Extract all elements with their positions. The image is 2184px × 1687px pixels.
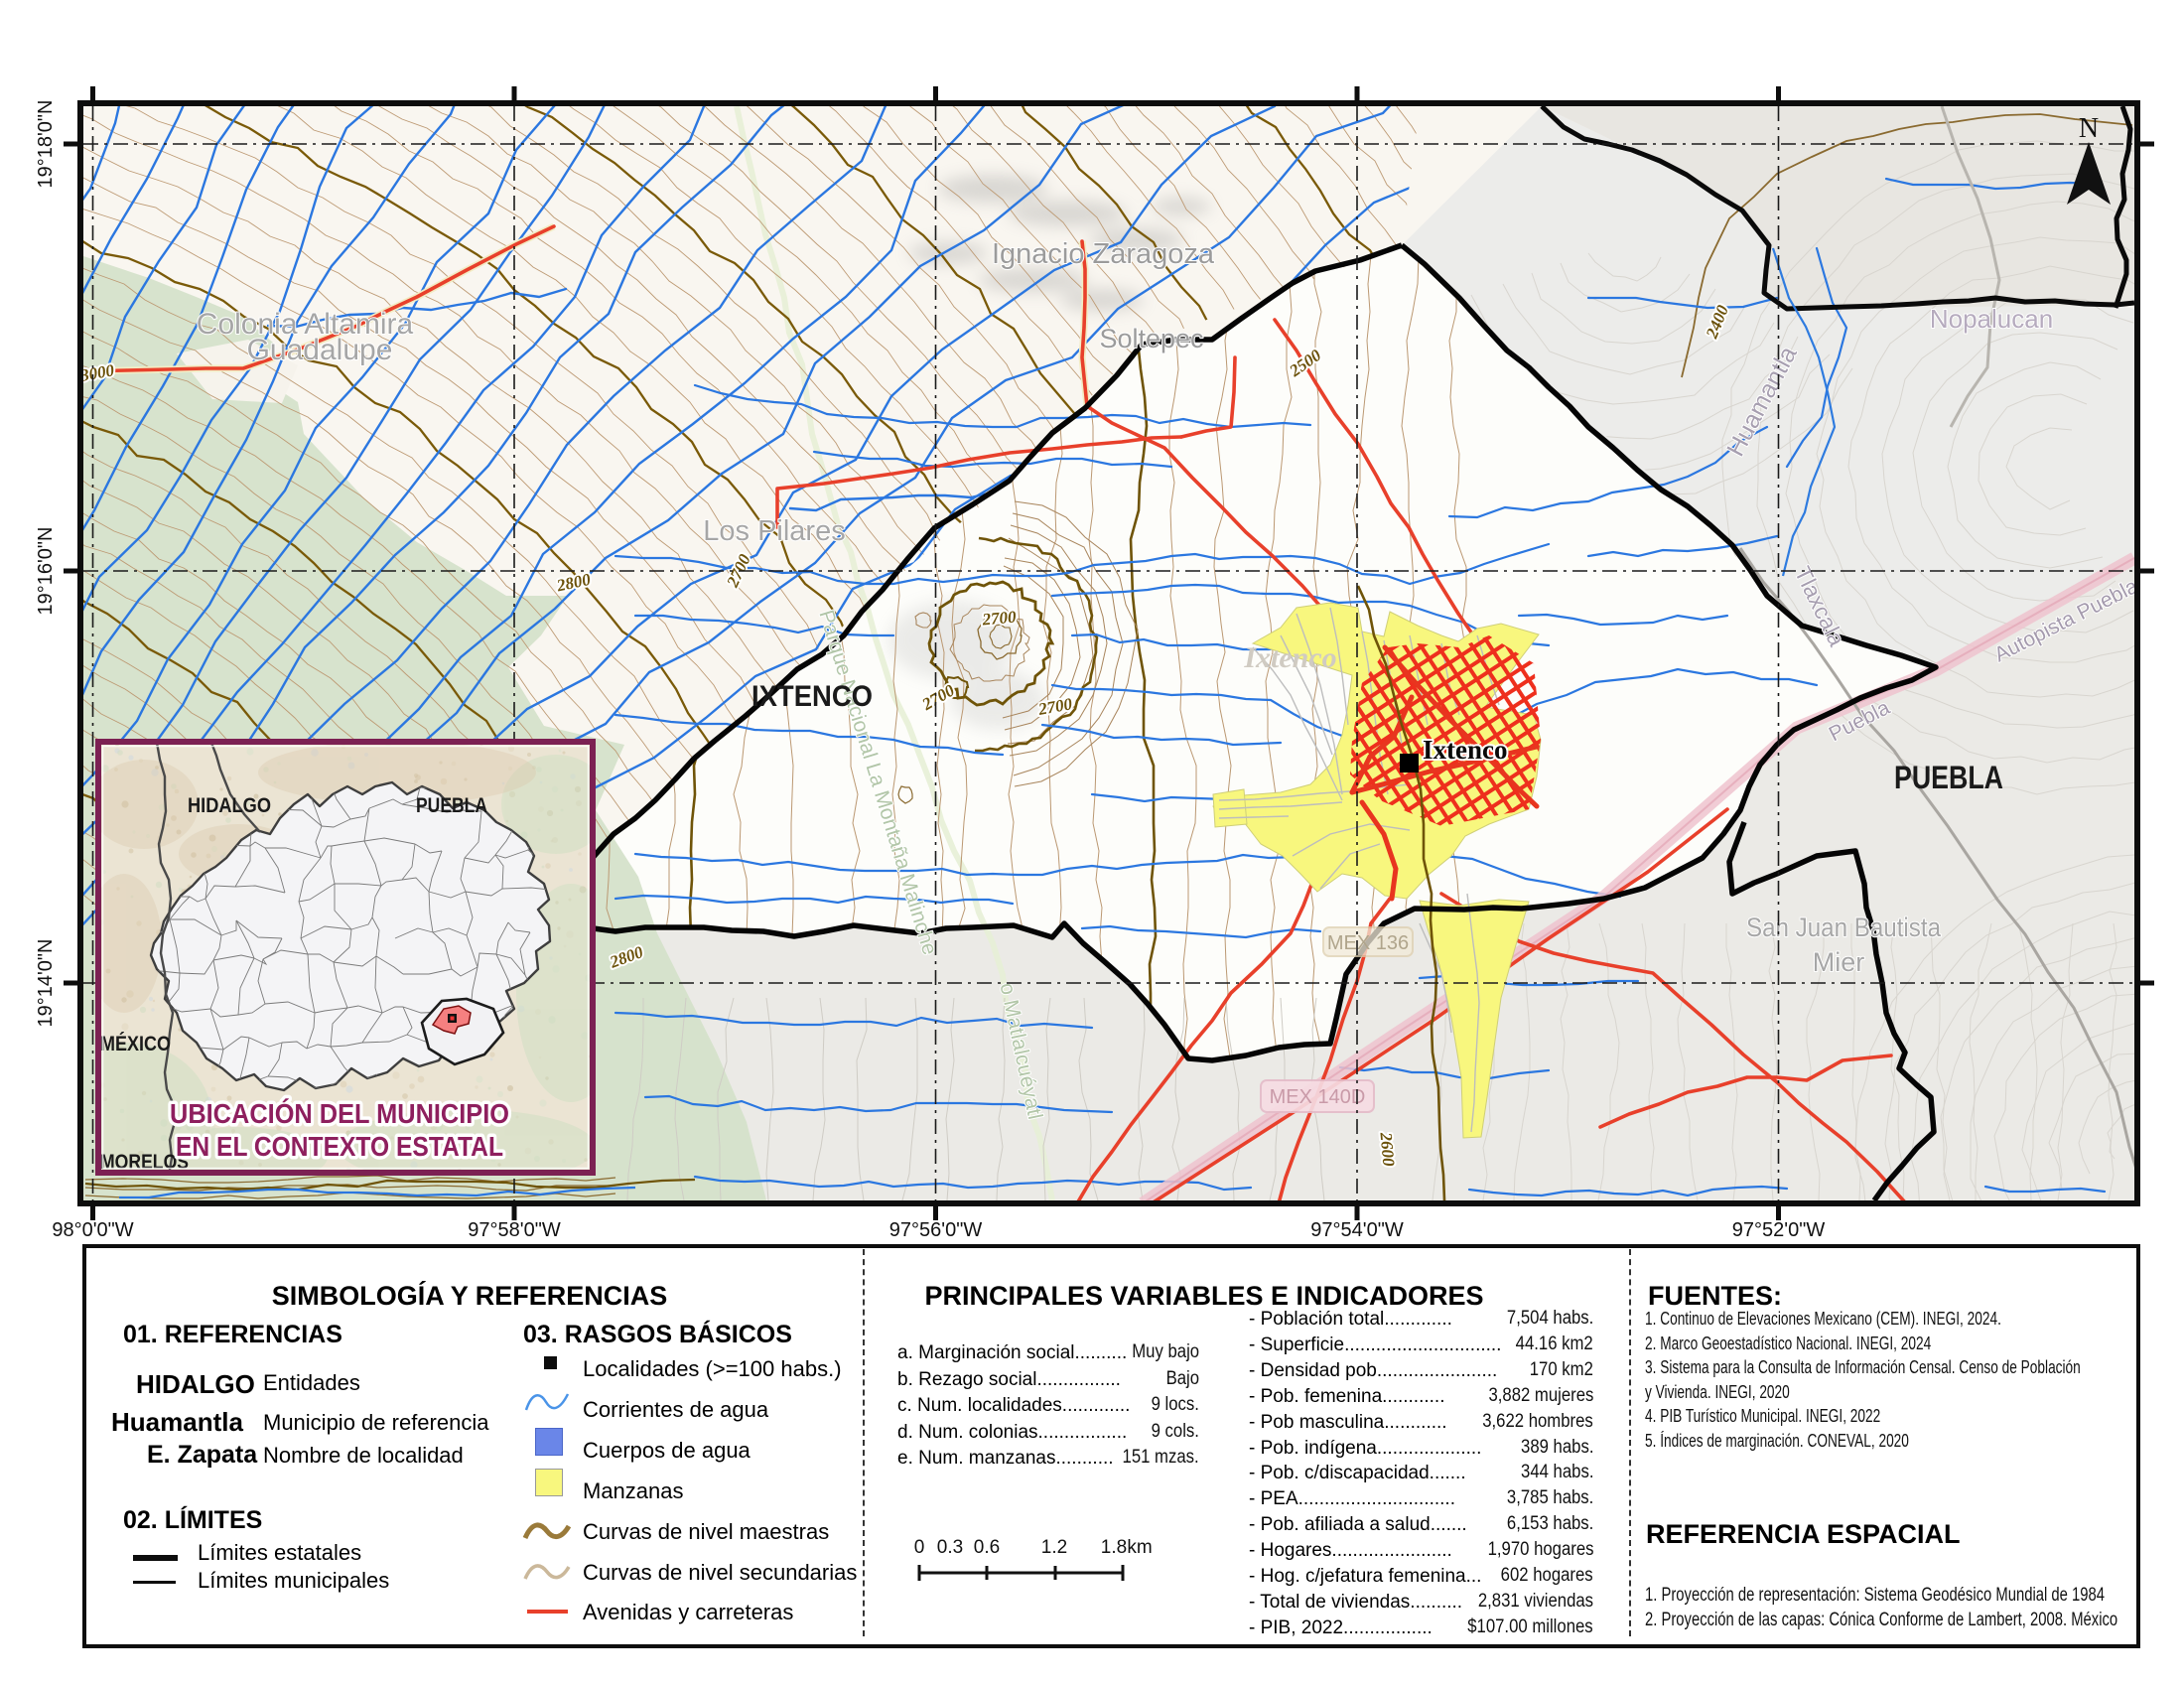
svg-text:19°18'0"N: 19°18'0"N [35,100,57,189]
svg-text:97°52'0"W: 97°52'0"W [1732,1219,1826,1241]
svg-text:UBICACIÓN DEL MUNICIPIO: UBICACIÓN DEL MUNICIPIO [170,1098,509,1129]
svg-text:Soltepec: Soltepec [1099,324,1203,353]
svg-text:Guadalupe: Guadalupe [247,334,393,366]
svg-text:N: N [2079,113,2099,144]
svg-text:PUEBLA: PUEBLA [416,794,487,817]
svg-text:2700: 2700 [981,608,1018,630]
svg-text:Ixtenco: Ixtenco [1423,735,1507,765]
svg-text:Nopalucan: Nopalucan [1930,304,2053,334]
svg-text:1.8: 1.8 [1101,1537,1127,1558]
svg-text:0.3: 0.3 [937,1537,963,1558]
svg-text:0.6: 0.6 [974,1537,1000,1558]
svg-text:MEX 136: MEX 136 [1327,932,1409,954]
svg-text:MEX 140D: MEX 140D [1270,1086,1366,1108]
svg-text:Ignacio Zaragoza: Ignacio Zaragoza [992,238,1215,270]
svg-text:MÉXICO: MÉXICO [100,1033,171,1055]
svg-text:19°14'0"N: 19°14'0"N [35,939,57,1028]
svg-text:97°54'0"W: 97°54'0"W [1310,1219,1404,1241]
svg-text:San Juan Bautista: San Juan Bautista [1746,913,1942,942]
svg-text:1.2: 1.2 [1041,1537,1067,1558]
svg-text:IXTENCO: IXTENCO [751,680,873,713]
svg-text:0: 0 [914,1537,925,1558]
svg-text:2600: 2600 [1376,1131,1398,1168]
svg-text:Mier: Mier [1813,947,1865,977]
svg-text:EN EL CONTEXTO ESTATAL: EN EL CONTEXTO ESTATAL [176,1131,503,1162]
svg-text:98°0'0"W: 98°0'0"W [52,1219,133,1241]
svg-text:Ixtenco: Ixtenco [1243,641,1336,674]
svg-text:19°16'0"N: 19°16'0"N [35,527,57,616]
svg-text:97°58'0"W: 97°58'0"W [468,1219,561,1241]
svg-text:HIDALGO: HIDALGO [188,794,271,817]
svg-text:km: km [1127,1537,1152,1558]
svg-text:Los Pilares: Los Pilares [703,515,845,547]
svg-text:97°56'0"W: 97°56'0"W [889,1219,983,1241]
svg-text:PUEBLA: PUEBLA [1894,760,2003,795]
